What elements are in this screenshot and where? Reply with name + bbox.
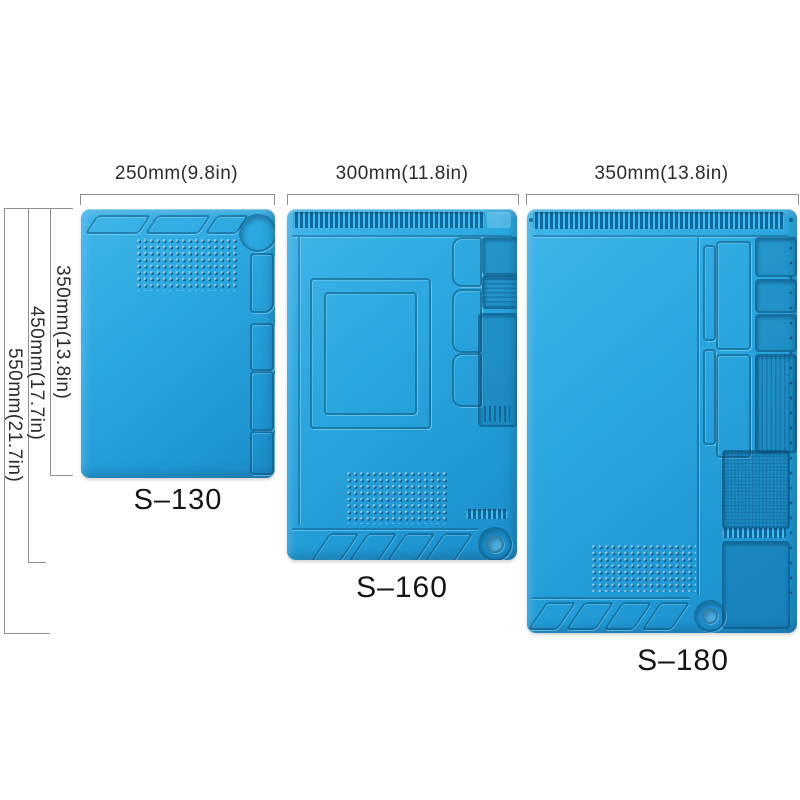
edge-hole-column [789, 244, 794, 594]
model-label-s130: S–130 [81, 484, 275, 517]
scalloped-slot [452, 237, 482, 287]
screw-dot-grid [137, 239, 238, 291]
round-dish-center [702, 608, 718, 624]
width-dimension-label-s160: 300mm(11.8in) [287, 163, 517, 185]
mini-teeth-strip [466, 509, 508, 519]
product-size-comparison-figure: 250mm(9.8in) 300mm(11.8in) 350mm(13.8in)… [0, 0, 800, 800]
mat-s160 [287, 209, 517, 560]
width-dimension-label-s130: 250mm(9.8in) [80, 163, 273, 185]
tray-comb [484, 406, 510, 422]
slanted-groove [85, 215, 152, 234]
ridged-tray [482, 275, 517, 309]
side-slot [250, 253, 274, 313]
screw-hole [529, 218, 533, 222]
side-slot [250, 323, 274, 371]
big-tray [722, 541, 790, 629]
round-dish-center [486, 535, 504, 553]
comb-teeth-strip [533, 212, 785, 229]
mini-teeth-strip [722, 528, 786, 538]
screw-hole [789, 218, 793, 222]
comb-teeth-strip [293, 212, 485, 228]
height-dimension-label-s180: 550mm(21.7in) [3, 348, 25, 482]
width-dimension-label-s180: 350mm(13.8in) [526, 163, 797, 185]
model-label-s160: S–160 [287, 571, 517, 605]
groove-line [533, 235, 789, 237]
groove-line [532, 597, 690, 599]
side-slot [250, 371, 274, 431]
side-tray [482, 237, 517, 275]
width-dimension-bracket-s160 [287, 194, 519, 205]
groove-line [292, 528, 478, 530]
model-label-s180: S–180 [583, 644, 783, 678]
groove-line [697, 237, 699, 595]
width-dimension-bracket-s180 [526, 194, 799, 205]
tall-tray [478, 313, 517, 427]
height-dimension-label-s130: 350mm(13.8in) [51, 265, 73, 399]
slanted-groove [145, 215, 212, 234]
groove-line [298, 237, 300, 525]
screw-dot-grid [592, 545, 696, 592]
mid-slot [716, 354, 751, 458]
thin-slot [703, 349, 716, 445]
mat-s130 [81, 209, 275, 478]
screw-dot-grid [347, 472, 447, 524]
round-parts-dish [239, 214, 275, 252]
mid-slot [716, 241, 751, 350]
raised-end-block [487, 212, 511, 228]
side-slot [250, 431, 274, 475]
height-dimension-label-s160: 450mm(17.7in) [25, 306, 47, 440]
mat-s180 [527, 209, 797, 633]
recessed-frame-inner [324, 292, 417, 415]
thin-slot [703, 245, 716, 341]
textured-tray [722, 450, 790, 529]
width-dimension-bracket-s130 [80, 194, 275, 205]
